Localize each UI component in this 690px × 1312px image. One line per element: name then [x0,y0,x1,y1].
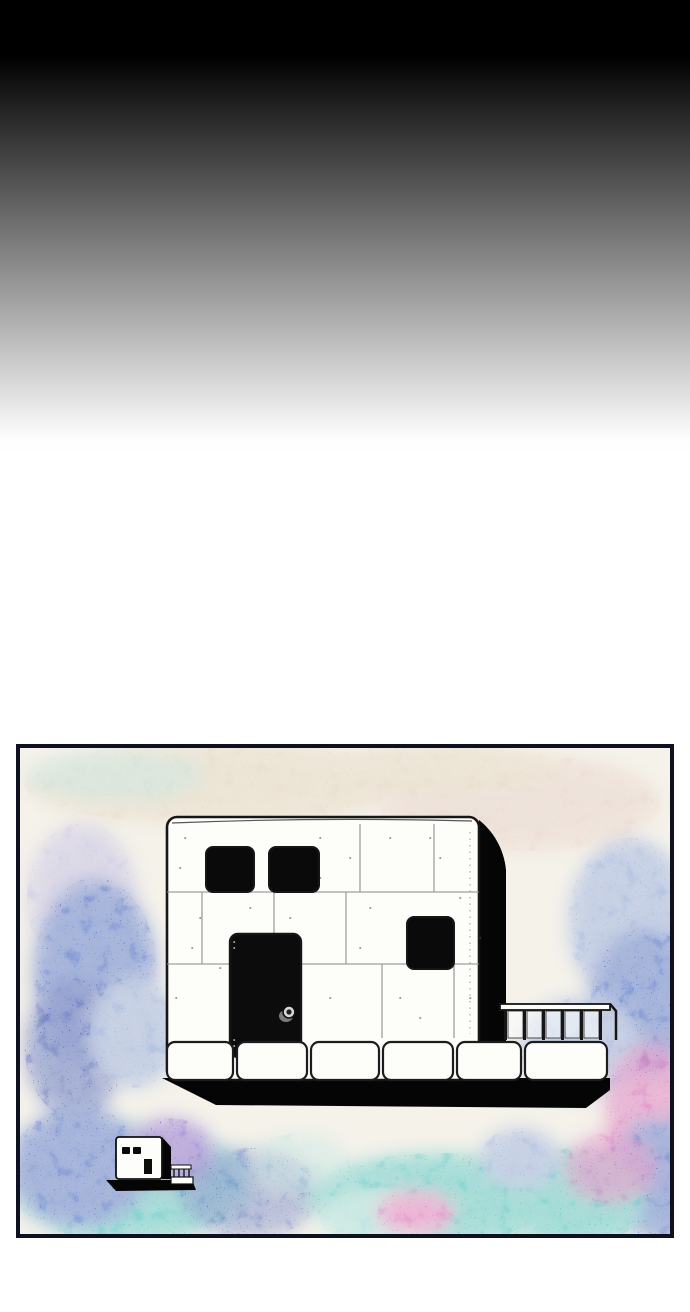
small-window [122,1147,130,1154]
window-top-right [269,847,319,892]
comic-panel [16,744,674,1238]
railing-panel [565,1011,580,1038]
railing-panel [527,1011,542,1038]
front-door [230,934,301,1057]
railing-post [504,1010,507,1040]
railing-post [580,1010,583,1040]
small-door [144,1159,152,1174]
stone-block [383,1042,453,1080]
stone-block [167,1042,233,1080]
window-mid-right [407,917,454,969]
sky-gradient [0,0,690,458]
balcony-railing [500,1004,616,1040]
stone-base-row [167,1042,607,1080]
small-building-front-face [116,1137,162,1179]
stone-block [457,1042,521,1080]
building-ground-shadow [162,1078,610,1108]
window-top-left [206,847,254,892]
railing-top-rail [500,1004,610,1010]
door-slab [230,934,301,1057]
railing-panel [508,1011,523,1038]
railing-panel [584,1011,599,1038]
stone-block [311,1042,379,1080]
railing-post [542,1010,545,1040]
webtoon-page [0,0,690,1312]
railing-post [561,1010,564,1040]
railing-post [523,1010,526,1040]
doorknob-center [286,1009,291,1014]
railing-post [599,1010,602,1040]
small-stone-step [171,1177,193,1184]
small-railing-rail [171,1165,191,1169]
panel-art [20,748,670,1234]
small-window [133,1147,141,1154]
stone-block [237,1042,307,1080]
stone-block [525,1042,607,1080]
railing-panel [546,1011,561,1038]
